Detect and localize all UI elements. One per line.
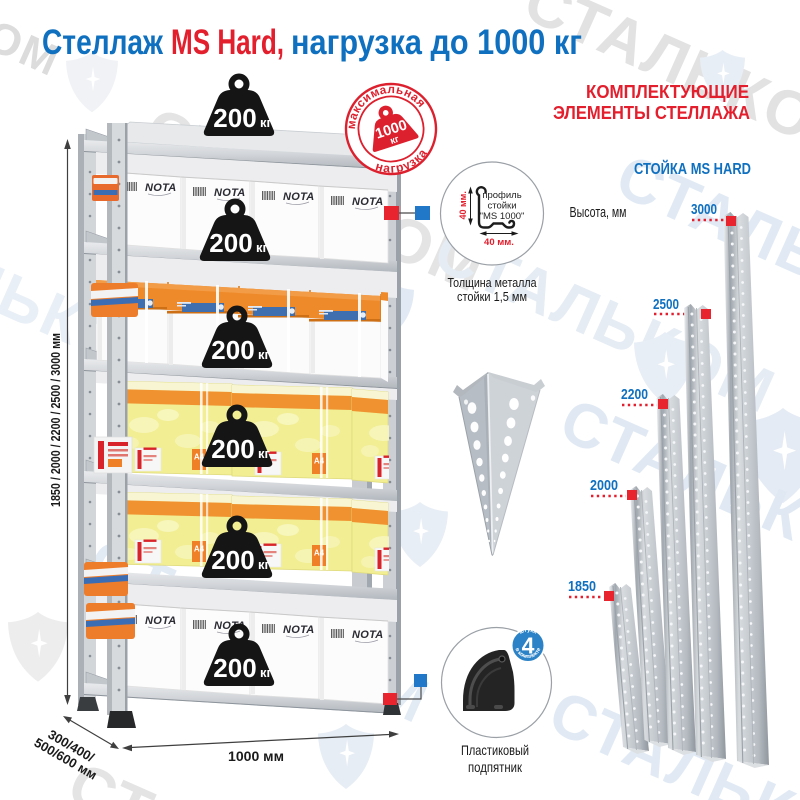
svg-text:300/400/500/600 мм: 300/400/500/600 мм [32, 723, 107, 783]
svg-text:"MS 1000": "MS 1000" [480, 211, 525, 222]
svg-text:нагрузка до 1000 кг: нагрузка до 1000 кг [291, 23, 582, 62]
svg-text:A4: A4 [434, 553, 445, 562]
svg-text:2200: 2200 [621, 387, 648, 403]
svg-text:подпятник: подпятник [468, 759, 523, 775]
svg-text:1000 мм: 1000 мм [228, 749, 284, 764]
svg-text:Высота, мм: Высота, мм [570, 204, 627, 221]
svg-text:КОМПЛЕКТУЮЩИЕ: КОМПЛЕКТУЮЩИЕ [586, 82, 749, 102]
svg-text:NOTA: NOTA [352, 629, 384, 641]
svg-text:2000: 2000 [590, 478, 618, 494]
svg-text:Стеллаж: Стеллаж [42, 23, 164, 62]
svg-text:NOTA: NOTA [283, 191, 315, 203]
svg-text:A4: A4 [314, 549, 325, 558]
svg-text:ЭЛЕМЕНТЫ СТЕЛЛАЖА: ЭЛЕМЕНТЫ СТЕЛЛАЖА [553, 103, 750, 123]
svg-text:стойки 1,5 мм: стойки 1,5 мм [457, 289, 527, 304]
svg-text:2500: 2500 [653, 297, 679, 313]
svg-text:NOTA: NOTA [145, 615, 177, 627]
svg-text:NOTA: NOTA [283, 624, 315, 636]
svg-text:40 мм.: 40 мм. [458, 191, 468, 219]
svg-text:стойки: стойки [487, 201, 516, 212]
svg-text:СТОЙКА MS HARD: СТОЙКА MS HARD [634, 160, 751, 178]
svg-text:A4: A4 [194, 545, 205, 554]
svg-text:NOTA: NOTA [352, 196, 384, 208]
svg-text:MS Hard,: MS Hard, [171, 23, 284, 62]
svg-text:профиль: профиль [482, 190, 521, 201]
svg-text:3000: 3000 [691, 202, 717, 218]
svg-text:NOTA: NOTA [214, 187, 246, 199]
svg-text:Толщина металла: Толщина металла [448, 275, 538, 290]
svg-text:4: 4 [522, 633, 535, 659]
svg-text:1850: 1850 [568, 579, 596, 595]
svg-text:1850 / 2000 / 2200 / 2500 / 30: 1850 / 2000 / 2200 / 2500 / 3000 мм [48, 333, 63, 507]
svg-text:Пластиковый: Пластиковый [461, 742, 529, 758]
svg-text:NOTA: NOTA [145, 182, 177, 194]
svg-text:A4: A4 [434, 461, 445, 470]
svg-text:40 мм.: 40 мм. [484, 237, 514, 248]
svg-text:A4: A4 [314, 457, 325, 466]
